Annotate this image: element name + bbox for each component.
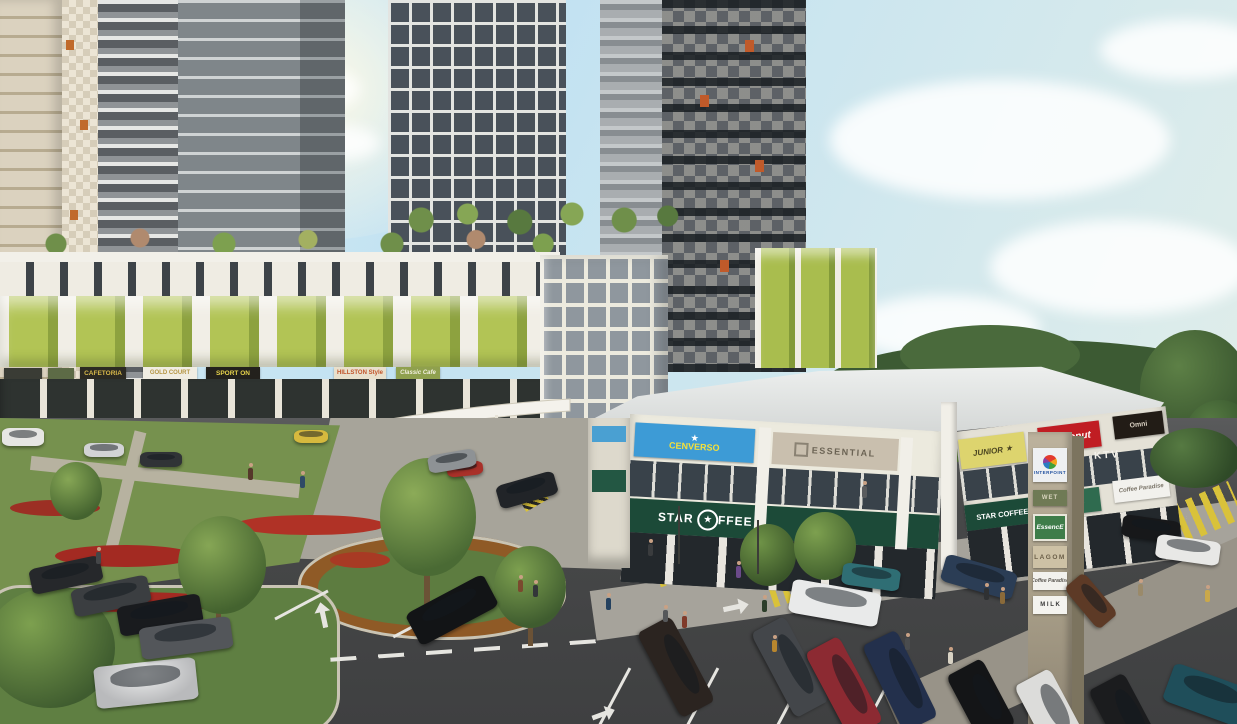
junior-label: JUNIOR bbox=[972, 445, 1003, 458]
pedestrian bbox=[905, 638, 910, 650]
cloud bbox=[1100, 20, 1237, 80]
pedestrian bbox=[1138, 584, 1143, 596]
omni-label: Omni bbox=[1129, 421, 1148, 430]
cenverso-label: CENVERSO bbox=[669, 440, 720, 453]
street-light-pole bbox=[678, 506, 680, 564]
pedestrian bbox=[772, 640, 777, 652]
car-taxi-yellow bbox=[294, 430, 328, 443]
pedestrian bbox=[606, 598, 611, 610]
shop-sign-sport-on: SPORT ON bbox=[206, 367, 260, 379]
shop-sign-hillston: HILLSTON Style bbox=[334, 367, 386, 379]
pylon-coffee-paradise-panel: Coffee Paradise bbox=[1033, 572, 1067, 590]
mosaic-accent bbox=[755, 160, 764, 172]
ktv-wall-letters: KTV bbox=[1094, 449, 1121, 462]
pylon-coffee-paradise-label: Coffee Paradise bbox=[1033, 578, 1067, 584]
pedestrian bbox=[663, 610, 668, 622]
pedestrian bbox=[533, 585, 538, 597]
pedestrian bbox=[762, 600, 767, 612]
sport-on-label: SPORT ON bbox=[216, 370, 250, 377]
pedestrian bbox=[648, 544, 653, 556]
pedestrian bbox=[1000, 592, 1005, 604]
mosaic-accent bbox=[745, 40, 754, 52]
shop-sign-small bbox=[48, 368, 74, 379]
mosaic-accent bbox=[66, 40, 74, 50]
pedestrian bbox=[682, 616, 687, 628]
pedestrian bbox=[984, 588, 989, 600]
cloud bbox=[990, 220, 1237, 315]
tree bbox=[1150, 428, 1237, 488]
flower-bed-red bbox=[235, 515, 385, 535]
pylon-milk-panel: M I L K bbox=[1033, 596, 1067, 614]
coffee-paradise-label: Coffee Paradise bbox=[1118, 483, 1164, 494]
architectural-render-scene: CAFETORIA GOLD COURT SPORT ON HILLSTON S… bbox=[0, 0, 1237, 724]
pedestrian bbox=[736, 566, 741, 578]
pavilion-left-end-green bbox=[592, 470, 626, 492]
podium-upper-floor bbox=[0, 262, 560, 296]
lagom-label: LAGOM bbox=[1034, 554, 1066, 561]
shop-sign-gold-court: GOLD COURT bbox=[143, 367, 197, 379]
junior-star-icon: ★ bbox=[1005, 444, 1012, 453]
pedestrian bbox=[948, 652, 953, 664]
tower-right-green-wall bbox=[755, 248, 877, 368]
island-flowers bbox=[330, 552, 390, 568]
essence-label: EssencE bbox=[1036, 524, 1063, 531]
tree bbox=[740, 524, 796, 586]
street-light-pole bbox=[757, 520, 759, 574]
pylon-wet-panel: WET bbox=[1033, 490, 1067, 506]
shop-sign-classic-cafe: Classic Cafe bbox=[396, 367, 440, 379]
milk-label: M I L K bbox=[1040, 602, 1060, 608]
podium-parapet bbox=[0, 252, 560, 262]
podium-vertical-garden bbox=[0, 296, 560, 367]
mosaic-accent bbox=[80, 120, 88, 130]
essential-sign: ESSENTIAL bbox=[771, 432, 899, 471]
rooftop-garden-strip bbox=[398, 198, 688, 238]
pedestrian bbox=[518, 580, 523, 592]
interpoint-label: INTERPOINT bbox=[1034, 470, 1066, 475]
tree bbox=[50, 462, 102, 520]
pedestrian bbox=[300, 476, 305, 488]
gold-court-label: GOLD COURT bbox=[150, 370, 190, 376]
cafetoria-label: CAFETORIA bbox=[84, 370, 122, 377]
hillston-label: HILLSTON Style bbox=[337, 370, 383, 376]
wet-label: WET bbox=[1042, 495, 1058, 501]
omni-sign: Omni bbox=[1112, 411, 1164, 440]
classic-cafe-label: Classic Cafe bbox=[400, 370, 436, 376]
pylon-essence-panel: EssencE bbox=[1033, 514, 1067, 541]
interpoint-pinwheel-icon bbox=[1043, 455, 1057, 469]
pedestrian bbox=[96, 552, 101, 564]
tree bbox=[494, 546, 566, 628]
pedestrian bbox=[1205, 590, 1210, 602]
essential-logo-icon bbox=[794, 442, 809, 457]
star-coffee-label-right: STAR COFFEE bbox=[976, 506, 1029, 521]
ktv-label: KTV bbox=[1094, 449, 1121, 462]
shop-sign-cafetoria: CAFETORIA bbox=[80, 367, 126, 379]
pylon-lagom-panel: LAGOM bbox=[1033, 546, 1067, 568]
mosaic-accent bbox=[70, 210, 78, 220]
van-white bbox=[2, 428, 44, 446]
essential-label: ESSENTIAL bbox=[811, 445, 875, 459]
mosaic-accent bbox=[720, 260, 729, 272]
pavilion-left-end-blue bbox=[592, 426, 626, 442]
shop-sign-small bbox=[4, 368, 42, 379]
pedestrian bbox=[248, 468, 253, 480]
car-white-small bbox=[84, 443, 124, 457]
pedestrian bbox=[862, 486, 867, 498]
car-dark-small bbox=[140, 452, 182, 467]
mosaic-accent bbox=[700, 95, 709, 107]
pylon-interpoint-panel: INTERPOINT bbox=[1033, 448, 1067, 482]
cenverso-sign: ★ CENVERSO bbox=[634, 422, 756, 463]
cloud bbox=[830, 80, 1170, 200]
pavilion-corner-pier bbox=[941, 402, 957, 570]
